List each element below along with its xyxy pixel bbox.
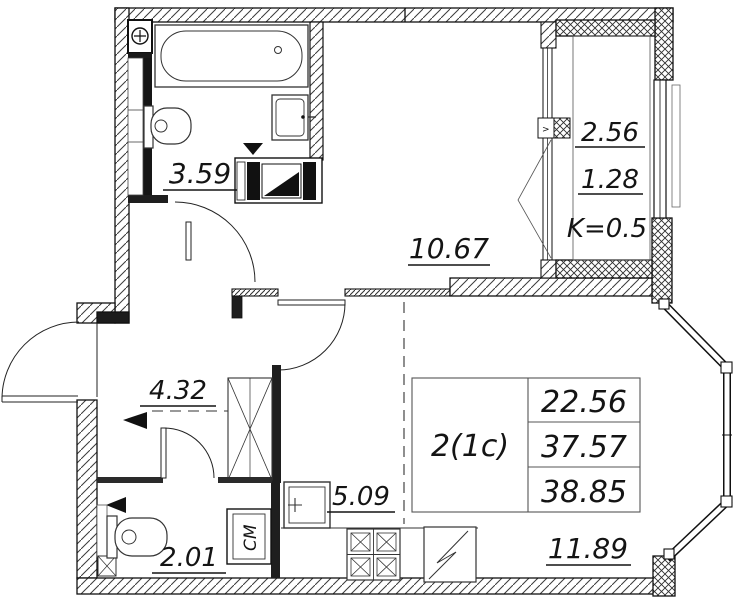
balcony-reduced-area-label: 1.28 <box>581 165 639 195</box>
balcony-wall-top <box>556 20 655 36</box>
pillar-top-right <box>655 8 673 80</box>
fridge-outline <box>424 527 476 582</box>
balcony-coefficient-label: K=0.5 <box>567 214 647 244</box>
toilet-wc <box>107 516 167 558</box>
bathtub <box>155 25 308 87</box>
wc-toilet-flush <box>122 530 136 544</box>
pillar-mid-right <box>652 218 672 303</box>
balcony-area-label: 2.56 <box>581 118 639 148</box>
wall-entry-step-cap <box>97 312 129 323</box>
balcony-post-bottom <box>541 260 556 278</box>
wardrobe <box>228 378 272 480</box>
hallway-wall-left <box>97 477 163 483</box>
bathtub-inner <box>161 31 302 81</box>
living-area-value: 22.56 <box>541 385 627 420</box>
bathroom-right-wall <box>310 22 323 160</box>
bathroom-door-leaf <box>186 222 191 260</box>
vent-shaft-block <box>235 158 322 203</box>
wall-left-upper <box>115 8 129 323</box>
balcony-door-post <box>554 118 570 138</box>
bathroom-bottom-wall <box>128 195 168 203</box>
shaft-block-left-bar <box>247 162 260 200</box>
floor-plan: > <box>0 0 740 600</box>
bathtub-drain <box>275 47 282 54</box>
riser-base <box>128 53 152 58</box>
stove <box>347 529 400 580</box>
room-label-living: 10.67 <box>409 232 489 265</box>
washing-machine-label: СМ <box>241 524 261 551</box>
bay-joint-1 <box>659 299 669 309</box>
wall-left-lower <box>77 400 97 578</box>
total-area-value: 38.85 <box>541 475 627 510</box>
balcony-post-top <box>541 22 556 48</box>
sink-faucet-dot <box>301 115 305 119</box>
floor-plan-svg: > <box>0 0 740 600</box>
washing-machine: СМ <box>227 509 271 564</box>
wall-niche <box>128 58 143 195</box>
wardrobe-wall <box>272 365 281 483</box>
room-label-room: 11.89 <box>548 532 628 565</box>
room-label-kitchen: 5.09 <box>332 482 390 512</box>
sink-inner <box>276 99 304 136</box>
area-value: 37.57 <box>541 430 627 465</box>
shaft-block-right-bar <box>303 162 316 200</box>
living-door-leaf <box>278 300 345 305</box>
hallway-wall-right <box>218 477 272 483</box>
bay-joint-4 <box>664 549 674 559</box>
thin-wall-right <box>345 289 450 296</box>
toilet-flush <box>155 120 167 132</box>
fridge <box>424 527 476 582</box>
wc-niche <box>97 505 107 557</box>
apartment-type-label: 2(1c) <box>431 429 509 464</box>
bay-joint-3 <box>721 496 732 507</box>
thick-wall-room <box>450 278 652 296</box>
wc-door-leaf <box>161 428 166 478</box>
balcony-wall-bottom <box>556 260 652 278</box>
info-table: 2(1c) 22.56 37.57 38.85 <box>412 378 640 512</box>
thin-wall-stub <box>232 296 242 318</box>
room-label-hallway: 4.32 <box>149 376 207 406</box>
pillar-bottom-right <box>653 556 675 596</box>
wc-riser-box <box>98 556 116 576</box>
shaft-block-strip <box>237 162 245 200</box>
wc-right-wall <box>271 483 280 578</box>
room-label-bathroom: 3.59 <box>169 157 231 190</box>
thin-wall-left <box>232 289 278 296</box>
bay-joint-2 <box>721 362 732 373</box>
vent-marker-label: > <box>542 125 550 135</box>
kitchen-sink <box>284 482 330 528</box>
room-label-wc: 2.01 <box>160 543 218 573</box>
toilet-bathroom <box>144 106 191 148</box>
